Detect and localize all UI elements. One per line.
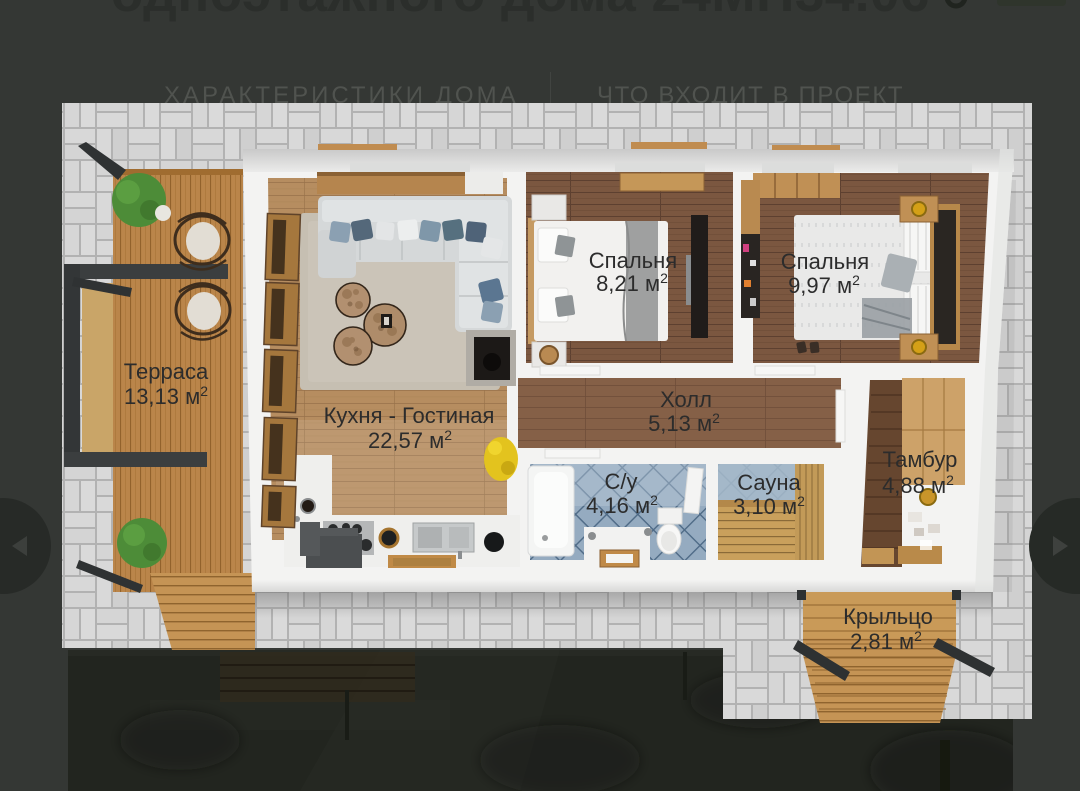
svg-text:9,97 м2: 9,97 м2 [788, 272, 860, 298]
svg-text:3,10 м2: 3,10 м2 [733, 493, 805, 519]
svg-text:Терраса: Терраса [124, 359, 209, 384]
svg-text:4,16 м2: 4,16 м2 [586, 492, 658, 518]
svg-text:5,13 м2: 5,13 м2 [648, 410, 720, 436]
svg-text:Крыльцо: Крыльцо [843, 604, 933, 629]
svg-text:Кухня - Гостиная: Кухня - Гостиная [324, 403, 495, 428]
svg-text:22,57 м2: 22,57 м2 [368, 427, 452, 453]
svg-text:2,81 м2: 2,81 м2 [850, 628, 922, 654]
svg-text:Тамбур: Тамбур [883, 447, 958, 472]
svg-text:13,13 м2: 13,13 м2 [124, 383, 208, 409]
svg-text:4,88 м2: 4,88 м2 [882, 472, 954, 498]
svg-text:Сауна: Сауна [737, 470, 801, 495]
svg-text:Спальня: Спальня [781, 249, 869, 274]
svg-text:Холл: Холл [660, 387, 712, 412]
svg-text:8,21 м2: 8,21 м2 [596, 270, 668, 296]
svg-text:С/у: С/у [605, 469, 638, 494]
